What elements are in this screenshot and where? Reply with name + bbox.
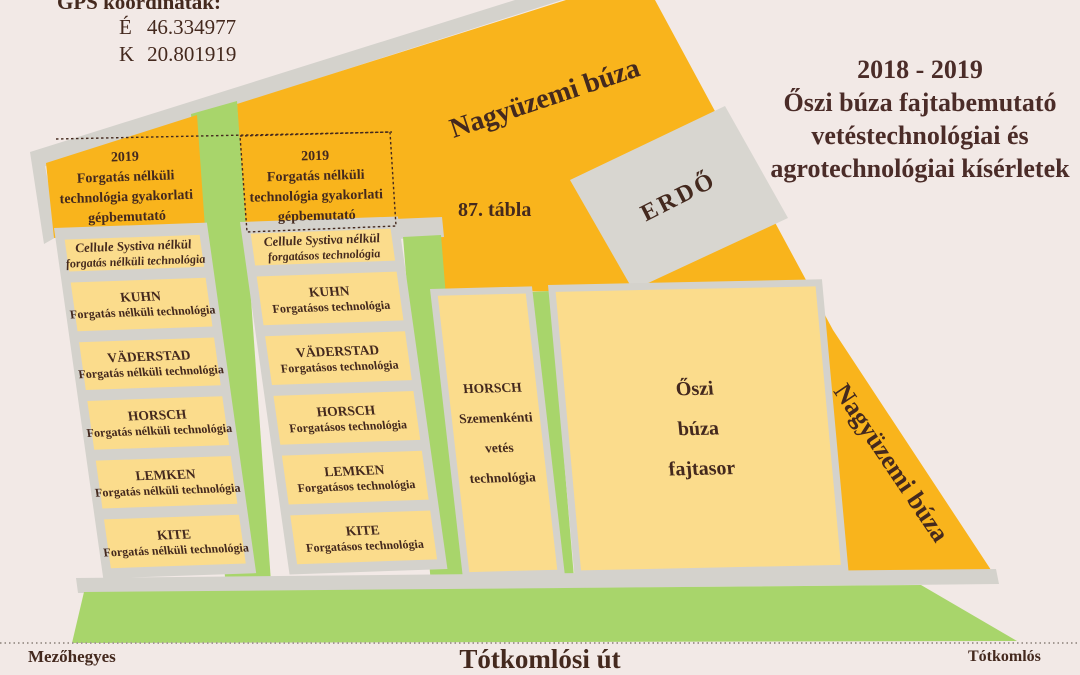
field-map-page: { "gps": { "title": "GPS koordináták:", … [0,0,1080,675]
title-line: agrotechnológiai kísérletek [758,152,1080,185]
plot-row: LEMKEN Forgatás nélküli technológia [96,456,238,509]
header-line: technológia gyakorlati [243,185,389,209]
plot-row: KITE Forgatásos technológia [290,511,437,565]
road-city-left: Mezőhegyes [28,647,116,667]
plot-row: HORSCH Forgatásos technológia [273,391,420,445]
title-line: 2018 - 2019 [758,53,1080,86]
plot-row: Cellule Systiva nélkül forgatásos techno… [251,229,395,266]
plot-row: KITE Forgatás nélküli technológia [104,515,246,568]
seed-block-line: HORSCH [461,372,523,403]
plot-name: LEMKEN [134,465,196,484]
plot-number-label: 87. tábla [458,199,531,222]
plot-row: Cellule Systiva nélkül forgatás nélküli … [65,235,204,272]
plot-tech: Forgatás nélküli technológia [94,481,241,501]
plot-tech: Forgatásos technológia [297,477,417,496]
plot-name: KITE [156,525,192,543]
variety-row-block: Őszi búza fajtasor [548,279,849,577]
plot-tech: Forgatásos technológia [280,357,400,376]
plot-tech: Forgatás nélküli technológia [77,362,224,382]
plot-row: VÄDERSTAD Forgatás nélküli technológia [79,337,221,390]
plot-row: KUHN Forgatás nélküli technológia [71,278,213,331]
seed-block-line: technológia [468,462,537,494]
plot-row: KUHN Forgatásos technológia [257,272,404,326]
gps-title: GPS koordináták: [57,0,236,14]
plot-row: LEMKEN Forgatásos technológia [282,451,429,505]
variety-block-line: Őszi [674,368,715,409]
title-line: vetéstechnológiai és [758,119,1080,152]
plot-row: VÄDERSTAD Forgatásos technológia [265,331,412,385]
plot-tech: forgatásos technológia [267,246,381,265]
seed-block-line: vetés [483,432,515,463]
plot-tech: Forgatásos technológia [305,536,425,555]
seed-block-line: Szemenkénti [457,402,534,434]
plot-tech: Forgatásos technológia [271,297,391,316]
title-line: Őszi búza fajtabemutató [758,86,1080,119]
road-name: Tótkomlósi út [380,644,700,675]
gps-north-label: É [119,14,132,41]
plot-row: HORSCH Forgatás nélküli technológia [87,396,229,449]
plot-name: LEMKEN [323,461,385,480]
gps-east-label: K [119,41,134,68]
plot-tech: Forgatás nélküli technológia [86,421,233,441]
plot-name: KITE [345,521,381,539]
column-a-header: 2019 Forgatás nélküli technológia gyakor… [47,145,206,230]
gps-north-value: 46.334977 [147,14,236,41]
gps-north-row: É 46.334977 [119,14,236,41]
road-green-strip [72,585,1017,643]
variety-block-line: búza [676,408,721,449]
plot-name: HORSCH [127,406,188,425]
gps-block: GPS koordináták: É 46.334977 K 20.801919 [57,0,236,68]
variety-block-line: fajtasor [667,448,737,489]
gps-east-value: 20.801919 [147,41,236,68]
plot-tech: Forgatás nélküli technológia [69,303,216,323]
plot-name: HORSCH [315,401,376,420]
column-b-header: 2019 Forgatás nélküli technológia gyakor… [242,145,390,229]
gps-east-row: K 20.801919 [119,41,236,68]
plot-name: KUHN [308,282,351,300]
plot-tech: Forgatás nélküli technológia [102,540,249,560]
page-title: 2018 - 2019 Őszi búza fajtabemutató veté… [758,53,1080,185]
header-line: gépbemutató [244,205,390,229]
plot-tech: Forgatásos technológia [288,417,408,436]
plot-name: KUHN [119,288,162,306]
road-city-right: Tótkomlós [968,648,1041,666]
